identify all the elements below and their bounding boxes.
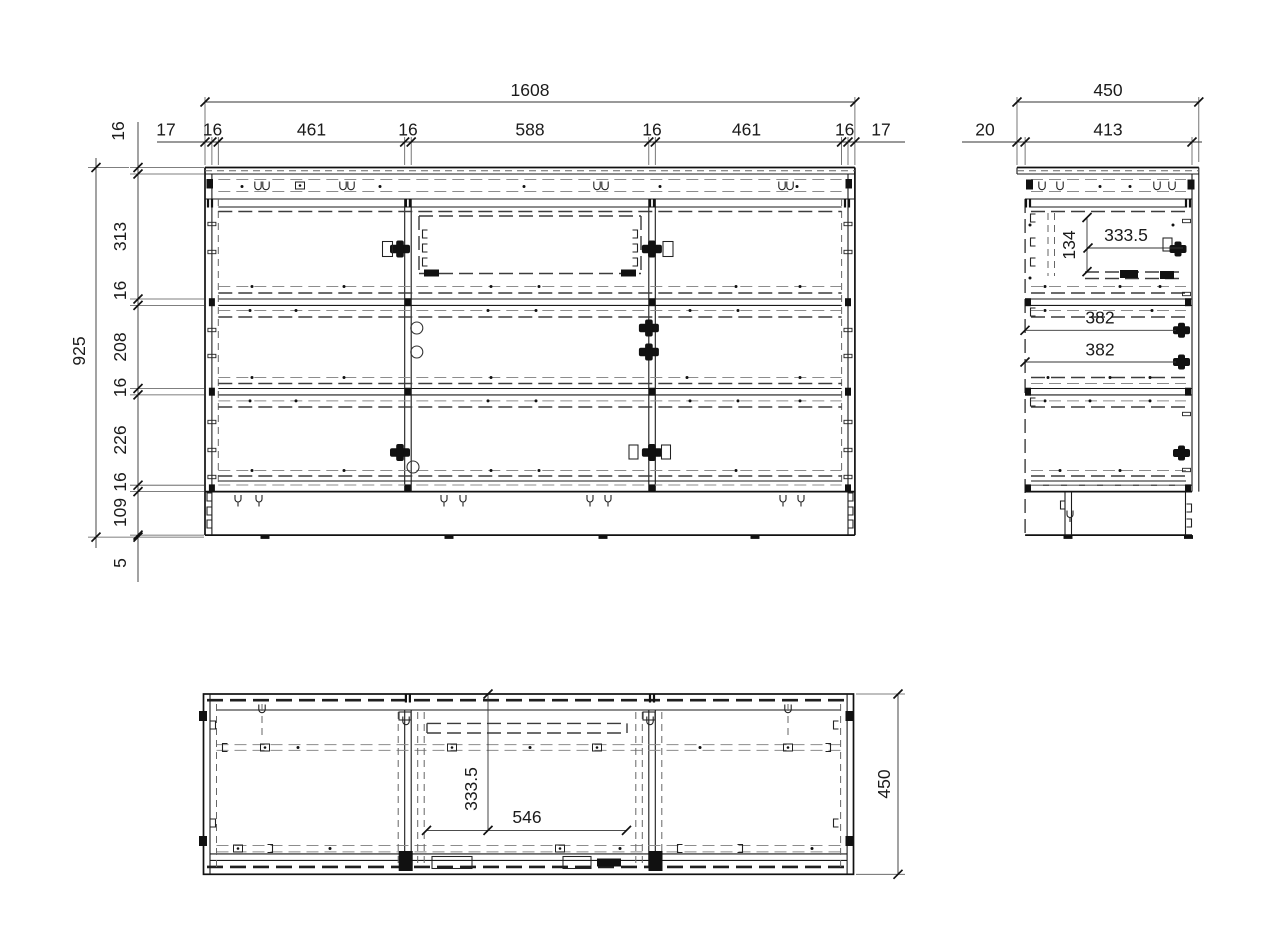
dim-top-opening-width: 546: [512, 807, 541, 827]
top-view-dimensions: 333.5 546 450: [422, 690, 905, 879]
dim-top-overall-depth: 450: [874, 769, 894, 798]
dim-width-chain-6: 461: [732, 120, 761, 140]
dim-width-chain-0: 17: [156, 120, 175, 140]
drawing-canvas: 1608 17 16 461 16 588 16 461 16 17 16 92…: [0, 0, 1261, 945]
front-view-dimensions: 1608 17 16 461 16 588 16 461 16 17 16 92…: [69, 80, 905, 582]
dim-height-chain-7: 5: [110, 558, 130, 568]
dim-height-chain-3: 16: [110, 378, 130, 397]
hinge-icon: [639, 344, 659, 361]
foot-icon: [599, 535, 608, 539]
dim-height-chain-5: 16: [110, 472, 130, 491]
hinge-icon: [1173, 446, 1190, 461]
dim-width-chain-1: 16: [203, 120, 222, 140]
dim-height-chain-4: 226: [110, 425, 130, 454]
foot-icon: [261, 535, 270, 539]
top-view: 333.5 546 450: [199, 690, 905, 879]
side-view-dimensions: 450 20 413 134 333.5 382 382: [962, 80, 1203, 367]
hinge-cup-icon: [407, 461, 419, 473]
dim-width-chain-8: 17: [871, 120, 890, 140]
foot-icon: [445, 535, 454, 539]
dim-front-overall-width: 1608: [511, 80, 550, 100]
dim-carcass-depth: 413: [1093, 120, 1122, 140]
dim-height-chain-2: 208: [110, 332, 130, 361]
dim-width-chain-4: 588: [515, 120, 544, 140]
front-view-linework: [205, 168, 855, 536]
dim-width-chain-5: 16: [642, 120, 661, 140]
dim-height-chain-6: 109: [110, 498, 130, 527]
dim-drawer-height: 134: [1059, 230, 1079, 259]
top-view-linework: [204, 694, 854, 874]
dim-back-gap: 20: [975, 120, 995, 140]
dim-drawer-depth: 333.5: [1104, 225, 1148, 245]
dim-width-chain-7: 16: [835, 120, 854, 140]
dim-hinge-0: 382: [1085, 308, 1114, 328]
dim-height-chain-0: 313: [110, 222, 130, 251]
hinge-cup-icon: [411, 322, 423, 334]
dim-width-chain-3: 16: [398, 120, 417, 140]
hinge-icon: [642, 241, 662, 258]
foot-icon: [1064, 535, 1073, 539]
hinge-cup-icon: [411, 346, 423, 358]
dim-front-overall-height: 925: [69, 336, 89, 365]
dim-width-chain-2: 461: [297, 120, 326, 140]
top-view-hardware: [199, 694, 854, 872]
foot-icon: [751, 535, 760, 539]
dim-side-overall-depth: 450: [1093, 80, 1122, 100]
hinge-icon: [642, 444, 662, 461]
hinge-icon: [390, 444, 410, 461]
hinge-icon: [639, 320, 659, 337]
dim-top-opening-depth: 333.5: [461, 767, 481, 811]
dim-top-panel: 16: [108, 121, 128, 140]
dim-hinge-1: 382: [1085, 340, 1114, 360]
front-view: 1608 17 16 461 16 588 16 461 16 17 16 92…: [69, 80, 905, 582]
technical-drawing-page: 1608 17 16 461 16 588 16 461 16 17 16 92…: [0, 0, 1261, 945]
dim-height-chain-1: 16: [110, 281, 130, 300]
side-view: 450 20 413 134 333.5 382 382: [962, 80, 1203, 539]
foot-icon: [1184, 535, 1193, 539]
